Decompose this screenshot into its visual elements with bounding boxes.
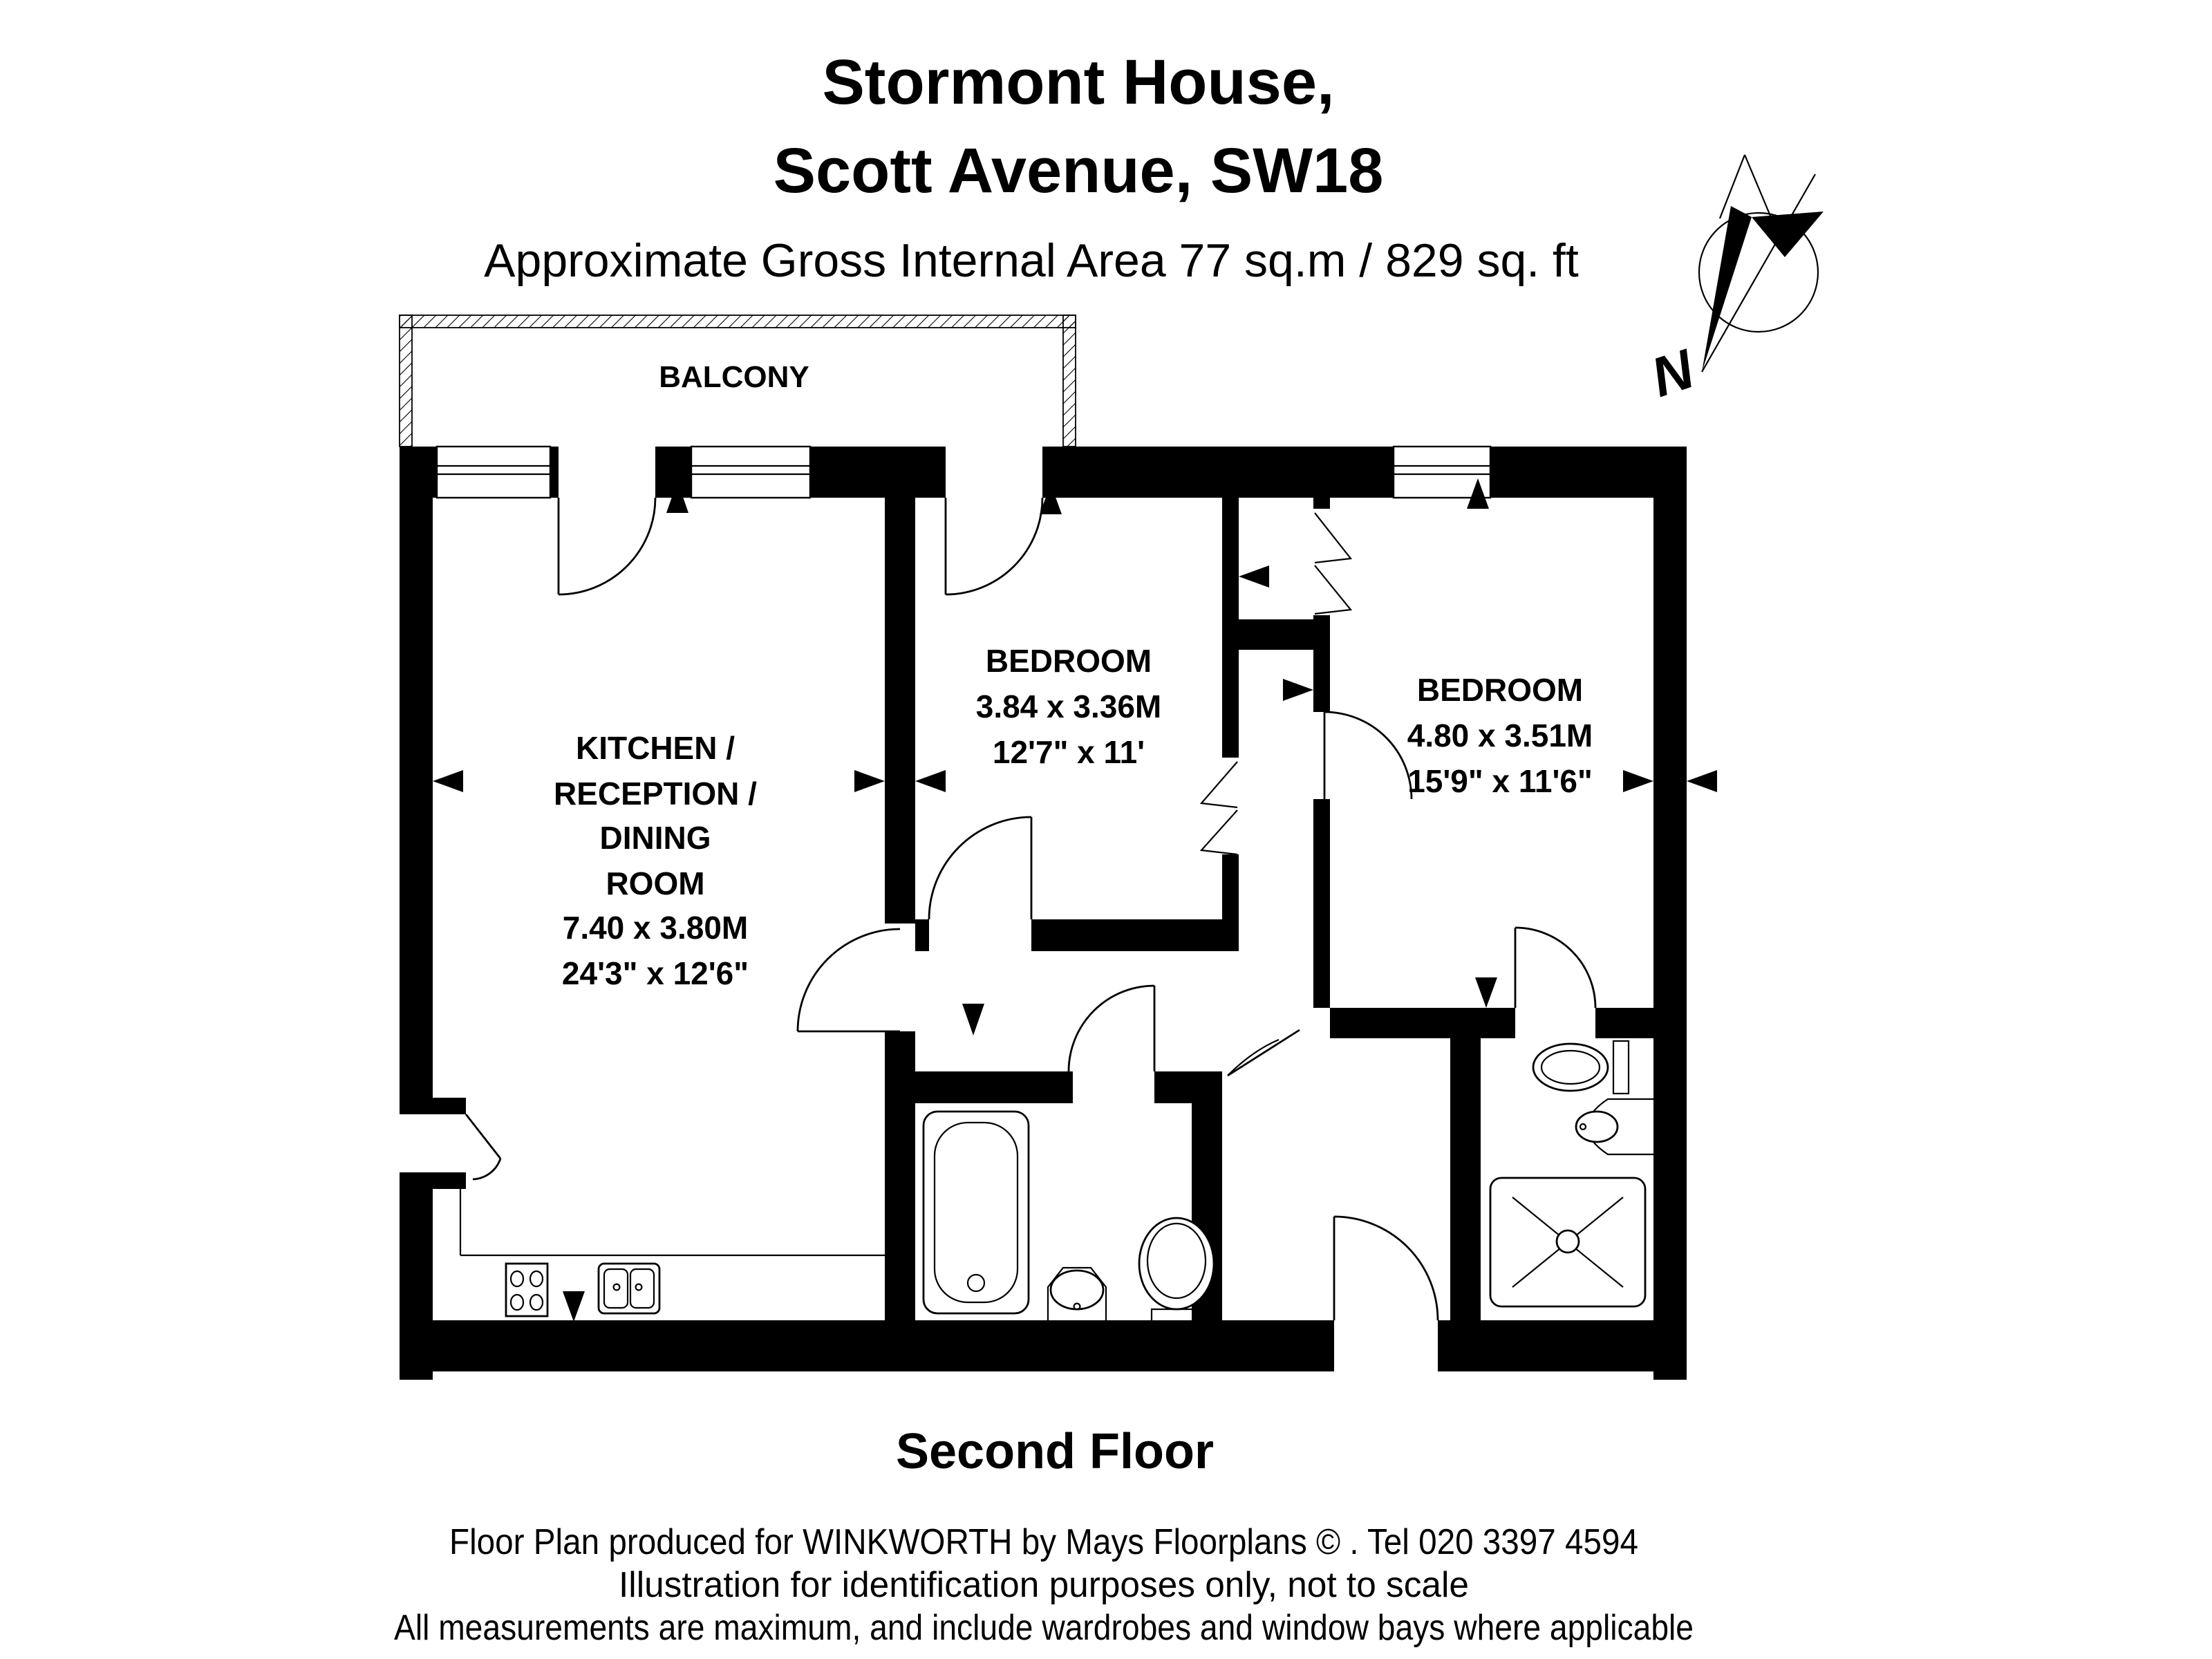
room-dimensions: 15'9" x 11'6"	[1407, 763, 1593, 799]
door-swing-icon	[559, 498, 655, 594]
door-swing-icon	[466, 1114, 500, 1179]
doors	[466, 498, 1595, 1320]
window-icon	[691, 447, 810, 498]
dimension-arrow-icon	[962, 1004, 984, 1035]
door-swing-icon	[1069, 986, 1154, 1071]
bifold-wardrobe-doors-icon	[1315, 513, 1351, 614]
room-label-line: BEDROOM	[1417, 672, 1583, 708]
door-swing-icon	[1228, 1030, 1300, 1076]
shower-tray-icon	[1490, 1178, 1645, 1306]
page-title: Stormont House,	[822, 47, 1334, 118]
bathroom-fixtures	[924, 1112, 1214, 1323]
kitchen-fixtures	[460, 1178, 885, 1316]
room-label-bedroom-2: BEDROOM 4.80 x 3.51M 15'9" x 11'6"	[1407, 672, 1593, 799]
ensuite-fixtures	[1490, 1041, 1653, 1306]
hatched-balcony-border-icon	[400, 315, 1076, 328]
door-swing-icon	[929, 817, 1031, 919]
compass-rose-icon: N	[1644, 155, 1824, 409]
area-subtitle: Approximate Gross Internal Area 77 sq.m …	[484, 234, 1579, 287]
hatched-balcony-border-icon	[400, 315, 412, 447]
floor-plan-page: Stormont House, Scott Avenue, SW18 Appro…	[0, 0, 2212, 1659]
room-label-line: KITCHEN /	[576, 730, 735, 766]
room-label-line: BEDROOM	[986, 643, 1152, 679]
door-swing-icon	[1324, 712, 1412, 799]
door-swing-icon	[946, 498, 1042, 594]
footer-disclaimer: Illustration for identification purposes…	[619, 1565, 1469, 1605]
hob-icon	[506, 1264, 547, 1316]
room-dimensions: 12'7" x 11'	[993, 734, 1145, 770]
pedestal-sink-icon	[1048, 1268, 1106, 1320]
dimension-arrow-icon	[1283, 679, 1313, 701]
dimension-arrow-icon	[854, 770, 885, 792]
dimension-arrow-icon	[1623, 770, 1653, 792]
room-label-line: DINING	[600, 820, 711, 856]
dimension-arrow-icon	[1239, 565, 1269, 588]
room-dimensions: 24'3" x 12'6"	[562, 955, 749, 991]
balcony-label: BALCONY	[659, 360, 809, 394]
bifold-wardrobe-doors-icon	[1201, 762, 1237, 854]
floor-label: Second Floor	[896, 1424, 1214, 1479]
bathtub-icon	[924, 1112, 1029, 1313]
pedestal-sink-icon	[1576, 1099, 1653, 1154]
room-dimensions: 4.80 x 3.51M	[1407, 718, 1593, 753]
room-dimensions: 3.84 x 3.36M	[976, 688, 1162, 724]
hatched-balcony-border-icon	[1063, 315, 1076, 447]
room-dimensions: 7.40 x 3.80M	[563, 910, 749, 946]
room-label-kitchen: KITCHEN / RECEPTION / DINING ROOM 7.40 x…	[554, 730, 757, 991]
room-label-bedroom-1: BEDROOM 3.84 x 3.36M 12'7" x 11'	[976, 643, 1162, 770]
dimension-arrow-icon	[1475, 977, 1497, 1008]
footer-credit: Floor Plan produced for WINKWORTH by May…	[449, 1522, 1638, 1562]
double-sink-icon	[599, 1264, 659, 1313]
footer-measurements-note: All measurements are maximum, and includ…	[394, 1608, 1694, 1648]
page-title-line2: Scott Avenue, SW18	[774, 135, 1384, 206]
dimension-arrow-icon	[563, 1291, 585, 1322]
door-swing-icon	[798, 929, 900, 1031]
dimension-arrow-icon	[433, 770, 463, 792]
door-swing-icon	[1515, 928, 1595, 1008]
door-swing-icon	[1334, 1217, 1438, 1320]
dimension-arrow-icon	[1687, 770, 1717, 792]
compass-north-label: N	[1644, 337, 1703, 409]
room-label-line: RECEPTION /	[554, 776, 757, 812]
dimension-arrow-icon	[915, 770, 946, 792]
window-icon	[437, 447, 550, 498]
room-label-line: ROOM	[606, 865, 704, 901]
toilet-icon	[1533, 1041, 1629, 1094]
balcony: BALCONY	[400, 315, 1076, 447]
